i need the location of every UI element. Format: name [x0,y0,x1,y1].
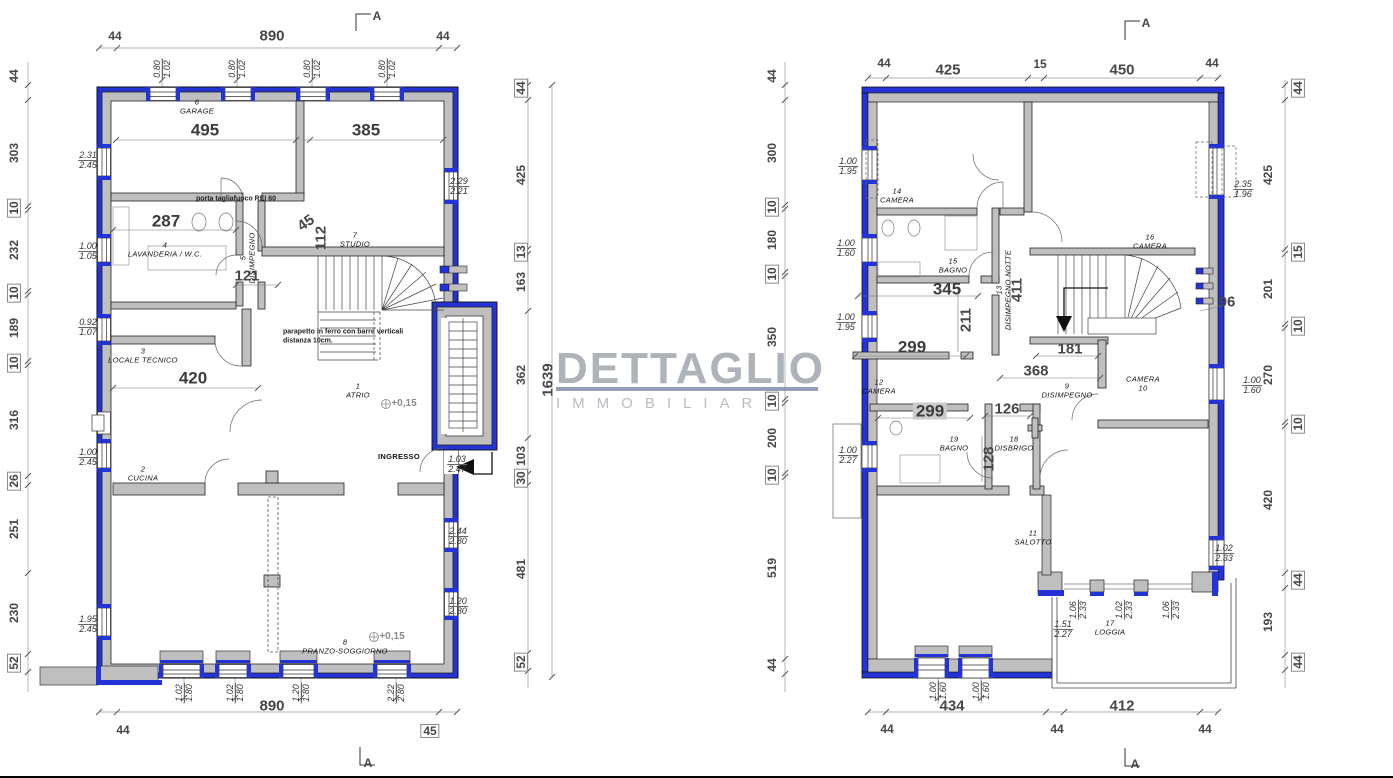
watermark-brand: DETTAGLIO [556,344,818,394]
dim-label: 425 [515,165,527,185]
room-name: CAMERA [880,196,914,205]
room-name: DISBRIGO [994,444,1033,453]
dim-bottom: 2.33 [1214,554,1234,563]
dim-label: 44 [877,57,890,69]
window-dim: 0.801.02 [228,59,246,79]
dim-bottom: 2.21 [449,187,469,196]
opening-dim: 2.292.21 [449,177,469,195]
dim-bottom: 1.05 [78,252,98,261]
room-dim: 495 [191,122,219,139]
dim-label: 44 [766,69,778,82]
dim-bottom: 2.45 [78,625,98,634]
dim-bottom: 2.33 [1172,600,1181,620]
window-dim: 0.801.02 [303,59,321,79]
room-dim: 299 [913,403,947,420]
dim-label: 300 [766,143,778,163]
section-marker-label: A [1142,17,1151,29]
level-label: +0,15 [379,632,404,642]
dim-label: 44 [1050,723,1063,735]
opening-dim: 1.001.60 [836,239,856,257]
level-label: +0,15 [391,399,416,409]
room-name: BAGNO [939,266,968,275]
window-dim: 1.001.60 [972,681,990,701]
room-name: GARAGE [180,107,214,116]
room-name: CAMERA [862,387,896,396]
opening-dim: 1.952.45 [78,615,98,633]
dim-label: 13 [514,242,528,261]
dim-bottom: 2.33 [1125,600,1134,620]
room-name: LAVANDERIA / W.C. [128,250,202,259]
dim-label: 44 [8,69,20,82]
opening-dim: 1.022.33 [1214,544,1234,562]
dim-bottom: 2.80 [448,537,468,546]
dim-label: 30 [514,468,528,487]
opening-dim: 1.001.95 [838,157,858,175]
floorplan-canvas: DETTAGLIO IMMOBILIARE 44 890 44 A A 0.80… [0,0,1393,778]
plan2-linework [782,21,1288,766]
opening-dim: 1.001.95 [836,313,856,331]
room-label: 12CAMERA [862,379,896,396]
dim-label: 44 [1291,570,1305,589]
room-label: 3LOCALE TECNICO [108,348,178,365]
room-name: LOGGIA [1095,628,1126,637]
opening-dim: 0.921.07 [78,318,98,336]
dim-label: 420 [1262,490,1274,510]
window-dim: 1.021.80 [175,683,193,703]
room-name: STUDIO [340,240,370,249]
opening-dim: 1.001.60 [1242,376,1262,394]
dim-label: 44 [436,30,449,42]
dim-label: 26 [7,471,21,490]
room-dim: 126 [994,402,1019,417]
dim-bottom: 1.60 [836,249,856,258]
dim-bottom: 2.45 [78,161,98,170]
room-name: DISIMPEGNO [1042,391,1093,400]
dim-bottom: 2.33 [1079,600,1088,620]
window-dim: 1.021.80 [226,683,244,703]
dim-bottom: 1.02 [313,59,322,79]
dim-bottom: 1.80 [185,683,194,703]
room-label: 16CAMERA [1133,234,1167,251]
room-label: INGRESSO [378,453,420,462]
dim-label: 201 [1262,279,1274,299]
dim-label: 10 [765,264,779,283]
opening-dim: 1.001.05 [78,242,98,260]
room-label: 11SALOTTO [1015,530,1052,547]
dim-label: 270 [1262,365,1274,385]
opening-dim: 2.442.80 [448,527,468,545]
total-dim-label: 1639 [541,363,556,396]
room-label: 2CUCINA [128,466,159,483]
dim-label: 362 [515,365,527,385]
window-dim: 0.801.02 [153,59,171,79]
room-name: LOCALE TECNICO [108,356,178,365]
dim-label: 10 [7,353,21,372]
dim-label: 232 [8,240,20,260]
room-name: DISIMPEGNO NOTTE [1004,250,1013,330]
dim-label: 251 [8,519,20,539]
room-name: SALOTTO [1015,538,1052,547]
dim-label: 303 [8,143,20,163]
dim-bottom: 1.60 [939,681,948,701]
window-dim: 2.222.80 [387,683,405,703]
room-label: 18DISBRIGO [994,436,1033,453]
room-label: 19BAGNO [940,436,969,453]
room-label: 15BAGNO [939,258,968,275]
opening-dim: 2.312.45 [78,151,98,169]
window-dim: 1.201.80 [292,683,310,703]
dim-bottom: 2.80 [397,683,406,703]
note-label: distanza 10cm. [283,338,333,345]
dim-label: 481 [515,559,527,579]
dim-label: 10 [765,391,779,410]
dim-label: 350 [766,327,778,347]
dim-bottom: 2.45 [78,458,98,467]
dim-label: 44 [116,724,129,736]
room-label: CAMERA10 [1126,376,1160,393]
dim-label: 200 [766,428,778,448]
opening-dim: 1.202.80 [448,597,468,615]
opening-dim: 1.032.47 [447,455,467,473]
dim-label: 425 [1262,165,1274,185]
dim-label: 15 [1291,242,1305,261]
dim-bottom: 2.47 [447,465,467,474]
opening-dim: 1.062.33 [1069,600,1087,620]
opening-dim: 1.512.27 [1053,620,1073,638]
dim-label: 52 [7,653,21,672]
room-label: 1ATRIO [346,383,370,400]
section-marker-label: A [1131,758,1140,770]
room-dim: 287 [152,213,180,230]
dim-label: 15 [1033,58,1046,70]
dim-label: 10 [7,198,21,217]
room-label: 6GARAGE [180,99,214,116]
room-label: 8PRANZO-SOGGIORNO [302,639,388,656]
dim-label: 44 [1291,78,1305,97]
dim-label: 425 [935,63,960,78]
dim-label: 45 [420,724,439,738]
dim-bottom: 1.80 [236,683,245,703]
dim-label: 180 [766,230,778,250]
opening-dim: 1.062.33 [1162,600,1180,620]
room-name: ATRIO [346,391,370,400]
note-label: parapetto in ferro con barre verticali [283,329,403,336]
room-dim: 299 [898,339,926,356]
dim-label: 52 [514,652,528,671]
window-dim: 0.801.02 [378,59,396,79]
dim-bottom: 1.07 [78,328,98,337]
room-number: 10 [1126,384,1160,393]
dim-label: 412 [1109,699,1134,714]
opening-dim: 2.351.96 [1233,180,1253,198]
room-label: 13DISIMPEGNO NOTTE [996,250,1013,330]
room-label: 4LAVANDERIA / W.C. [128,242,202,259]
dim-bottom: 2.27 [838,456,858,465]
dim-label: 103 [515,446,527,466]
dim-label: 890 [259,699,284,714]
dim-bottom: 1.80 [302,683,311,703]
dim-label: 44 [108,30,121,42]
dim-bottom: 1.02 [163,59,172,79]
dim-label: 230 [8,603,20,623]
dim-label: 10 [1291,414,1305,433]
room-dim: 112 [314,226,329,250]
dim-label: 163 [515,272,527,292]
room-label: 14CAMERA [880,188,914,205]
room-name: BAGNO [940,444,969,453]
dim-label: 316 [8,410,20,430]
dim-label: 10 [765,197,779,216]
room-name: PRANZO-SOGGIORNO [302,647,388,656]
room-label: 7STUDIO [340,232,370,249]
window-dim: 1.001.60 [929,681,947,701]
dim-bottom: 2.80 [448,607,468,616]
dim-label: 10 [7,283,21,302]
dim-label: 44 [514,78,528,97]
opening-dim: 1.002.45 [78,448,98,466]
dim-bottom: 1.96 [1233,190,1253,199]
dim-bottom: 1.95 [838,167,858,176]
room-label: 5DISIMPEGNO [240,233,257,284]
room-name: DISIMPEGNO [248,233,257,284]
room-label: 9DISIMPEGNO [1042,383,1093,400]
dim-label: 519 [766,558,778,578]
room-dim: 211 [959,308,974,332]
dim-bottom: 1.02 [388,59,397,79]
room-dim: 368 [1023,364,1048,379]
note-label: porta tagliafuoco REI 60 [196,196,276,203]
dim-bottom: 1.95 [836,323,856,332]
room-dim: 345 [933,281,961,298]
room-name: CAMERA [1133,242,1167,251]
room-name: CUCINA [128,474,159,483]
room-dim: 385 [352,122,380,139]
dim-label: 890 [259,29,284,44]
opening-dim: 1.002.27 [838,446,858,464]
dim-label: 44 [766,658,778,671]
dim-bottom: 1.02 [238,59,247,79]
dim-bottom: 1.60 [982,681,991,701]
dim-bottom: 1.60 [1242,386,1262,395]
dim-label: 44 [1291,652,1305,671]
dim-label: 10 [765,465,779,484]
section-marker-label: A [364,757,373,769]
dim-bottom: 2.27 [1053,630,1073,639]
dim-label: 189 [8,318,20,338]
dim-label: 450 [1109,63,1134,78]
dim-label: 10 [1291,316,1305,335]
dim-label: 44 [1198,723,1211,735]
room-label: 17LOGGIA [1095,620,1126,637]
opening-dim: 1.022.33 [1115,600,1133,620]
section-marker-label: A [373,10,382,22]
dim-label: 44 [1205,57,1218,69]
room-dim: 181 [1057,342,1082,357]
room-dim: 420 [179,370,207,387]
room-dim: 96 [1219,295,1236,310]
dim-label: 44 [880,723,893,735]
dim-label: 193 [1262,612,1274,632]
plan1-linework [25,14,555,765]
